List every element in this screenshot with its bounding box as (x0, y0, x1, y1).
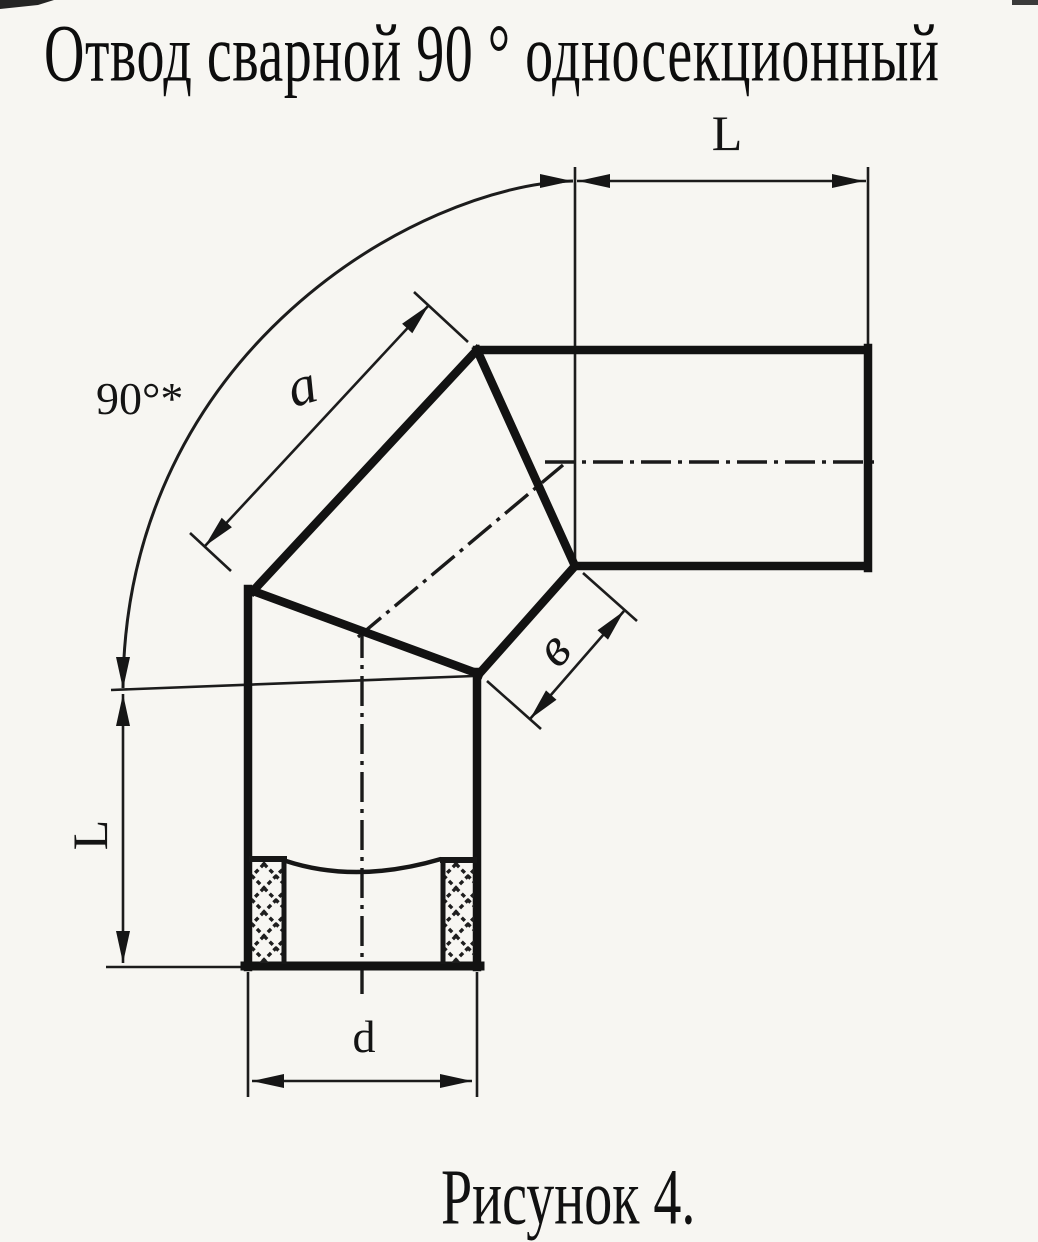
dimension-labels: L L 90°* a в d (62, 105, 742, 1062)
centerlines (358, 462, 878, 998)
dim-line-a (205, 305, 429, 546)
scan-smudge-top-left (0, 0, 54, 9)
scan-smudge-top-right (1012, 0, 1038, 5)
elbow-technical-drawing: L L 90°* a в d (0, 0, 1038, 1242)
arrow-top-L-left (578, 174, 610, 188)
scanned-drawing-sheet: Отвод сварной 90 ° односекционный (0, 0, 1038, 1242)
arrow-arc-bottom (116, 657, 130, 689)
arrow-arc-top (540, 174, 572, 188)
arrow-left-L-bottom (116, 931, 130, 963)
arrow-left-L-top (116, 694, 130, 726)
dimension-lines (106, 167, 868, 1097)
arrow-top-L-right (832, 174, 864, 188)
weld-seam-upper (477, 350, 575, 566)
arrowheads (116, 174, 864, 1088)
arrow-d-right (440, 1074, 472, 1088)
socket-section (249, 858, 477, 964)
label-length-left: L (62, 820, 118, 851)
label-length-top: L (712, 105, 743, 161)
ext-line-left-L-top (111, 676, 474, 690)
label-diameter-d: d (353, 1011, 376, 1062)
ext-line-b-upper (583, 573, 637, 621)
ext-line-a-upper (414, 292, 468, 342)
weld-seam-lower (253, 591, 479, 674)
figure-caption: Рисунок 4. (441, 1158, 695, 1238)
label-segment-b: в (523, 620, 583, 678)
hatch-band-left (252, 861, 282, 963)
label-angle-90: 90°* (96, 373, 183, 424)
label-segment-a: a (280, 352, 324, 419)
ext-line-b-lower (487, 681, 541, 729)
arrow-d-left (252, 1074, 284, 1088)
scan-artifacts (0, 0, 1038, 9)
hatch-band-right (445, 861, 474, 963)
angle-arc-90 (123, 181, 573, 688)
